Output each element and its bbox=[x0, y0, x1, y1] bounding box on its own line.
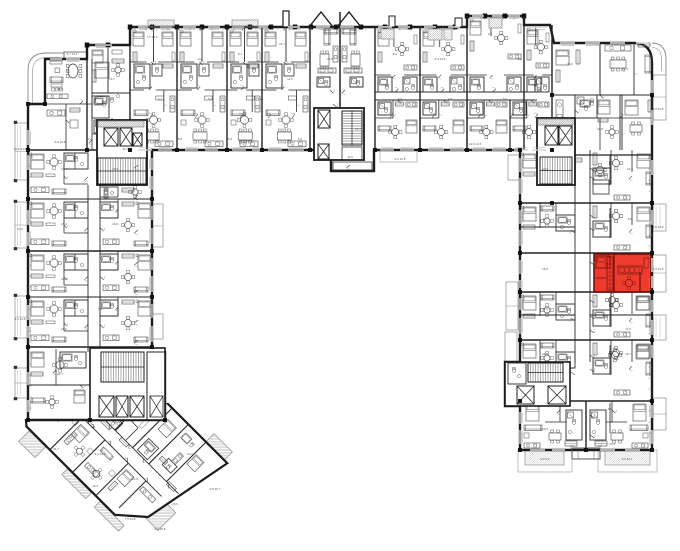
svg-text:28,6: 28,6 bbox=[57, 87, 63, 91]
svg-text:17,6: 17,6 bbox=[625, 327, 631, 331]
svg-text:25,4: 25,4 bbox=[61, 222, 67, 226]
svg-text:8,8: 8,8 bbox=[628, 217, 633, 221]
svg-text:5,6: 5,6 bbox=[208, 97, 213, 101]
svg-text:24,7: 24,7 bbox=[53, 447, 59, 451]
svg-text:14,6: 14,6 bbox=[187, 452, 193, 456]
svg-text:21,9: 21,9 bbox=[132, 477, 138, 481]
svg-text:11,0: 11,0 bbox=[347, 155, 353, 159]
svg-text:4,9 13,8: 4,9 13,8 bbox=[653, 225, 664, 229]
svg-text:9,3: 9,3 bbox=[488, 32, 493, 36]
svg-text:14,5: 14,5 bbox=[287, 77, 293, 81]
svg-text:9,3 62,1: 9,3 62,1 bbox=[622, 457, 633, 461]
svg-text:16,7: 16,7 bbox=[109, 77, 115, 81]
svg-text:5,9 13,8: 5,9 13,8 bbox=[653, 107, 664, 111]
svg-text:6,4: 6,4 bbox=[228, 137, 233, 141]
svg-text:9,8 13,8: 9,8 13,8 bbox=[55, 140, 66, 144]
svg-text:9,3: 9,3 bbox=[198, 57, 203, 61]
svg-text:9,1 13,6: 9,1 13,6 bbox=[95, 452, 106, 456]
svg-text:16,8 13,8: 16,8 13,8 bbox=[14, 147, 27, 151]
svg-text:7,5 13,8: 7,5 13,8 bbox=[125, 517, 136, 521]
svg-text:8,7: 8,7 bbox=[543, 217, 548, 221]
svg-text:23,4: 23,4 bbox=[61, 167, 67, 171]
svg-text:73,6: 73,6 bbox=[542, 307, 548, 311]
svg-text:4,5: 4,5 bbox=[448, 97, 453, 101]
svg-text:16,9: 16,9 bbox=[17, 227, 23, 231]
svg-text:5,6: 5,6 bbox=[503, 97, 508, 101]
svg-text:5,3 13,6: 5,3 13,6 bbox=[435, 57, 446, 61]
svg-text:36,9: 36,9 bbox=[567, 62, 573, 66]
svg-text:9,4 12,8: 9,4 12,8 bbox=[395, 157, 406, 161]
svg-text:9,2: 9,2 bbox=[393, 52, 398, 56]
svg-text:9,5 45,7: 9,5 45,7 bbox=[210, 487, 221, 491]
svg-text:4,8: 4,8 bbox=[398, 97, 403, 101]
svg-text:4,1: 4,1 bbox=[158, 97, 163, 101]
svg-text:5,7 13,9: 5,7 13,9 bbox=[67, 52, 78, 56]
svg-text:5,3 13,6: 5,3 13,6 bbox=[653, 267, 664, 271]
svg-text:3,2: 3,2 bbox=[258, 97, 263, 101]
svg-text:21,7: 21,7 bbox=[355, 127, 361, 131]
svg-text:33,5: 33,5 bbox=[61, 277, 67, 281]
svg-text:9,9 15,8: 9,9 15,8 bbox=[155, 527, 166, 531]
svg-text:10,8: 10,8 bbox=[597, 127, 603, 131]
svg-text:24,8: 24,8 bbox=[542, 352, 548, 356]
svg-text:15,9: 15,9 bbox=[542, 267, 548, 271]
svg-text:8,3: 8,3 bbox=[558, 137, 563, 141]
svg-text:9,1 13,8: 9,1 13,8 bbox=[15, 317, 26, 321]
svg-text:27,9: 27,9 bbox=[622, 67, 628, 71]
svg-text:16,7: 16,7 bbox=[625, 352, 631, 356]
svg-text:19,4: 19,4 bbox=[92, 484, 98, 488]
svg-text:6,9: 6,9 bbox=[608, 407, 613, 411]
svg-text:16,9: 16,9 bbox=[112, 222, 118, 226]
svg-text:9,9 6,4: 9,9 6,4 bbox=[540, 457, 550, 461]
svg-text:26,5: 26,5 bbox=[327, 57, 333, 61]
svg-text:8,2: 8,2 bbox=[518, 57, 523, 61]
svg-text:7,1: 7,1 bbox=[98, 307, 103, 311]
svg-text:16,4: 16,4 bbox=[112, 167, 118, 171]
svg-text:5,8: 5,8 bbox=[178, 137, 183, 141]
svg-text:5,5: 5,5 bbox=[298, 137, 303, 141]
svg-text:11,2: 11,2 bbox=[122, 147, 128, 151]
svg-text:7,2: 7,2 bbox=[88, 137, 93, 141]
svg-text:15,9: 15,9 bbox=[172, 502, 178, 506]
svg-text:13,6: 13,6 bbox=[627, 167, 633, 171]
svg-text:23,6: 23,6 bbox=[61, 327, 67, 331]
svg-text:7,5 13,9: 7,5 13,9 bbox=[147, 35, 158, 39]
svg-text:10,3: 10,3 bbox=[609, 442, 615, 446]
svg-text:23,9: 23,9 bbox=[542, 167, 548, 171]
svg-text:8,1: 8,1 bbox=[238, 52, 243, 56]
svg-text:13,9: 13,9 bbox=[542, 427, 548, 431]
svg-text:14,9 14,5: 14,9 14,5 bbox=[469, 142, 482, 146]
svg-text:21,7: 21,7 bbox=[279, 42, 285, 46]
svg-text:24,7: 24,7 bbox=[57, 372, 63, 376]
